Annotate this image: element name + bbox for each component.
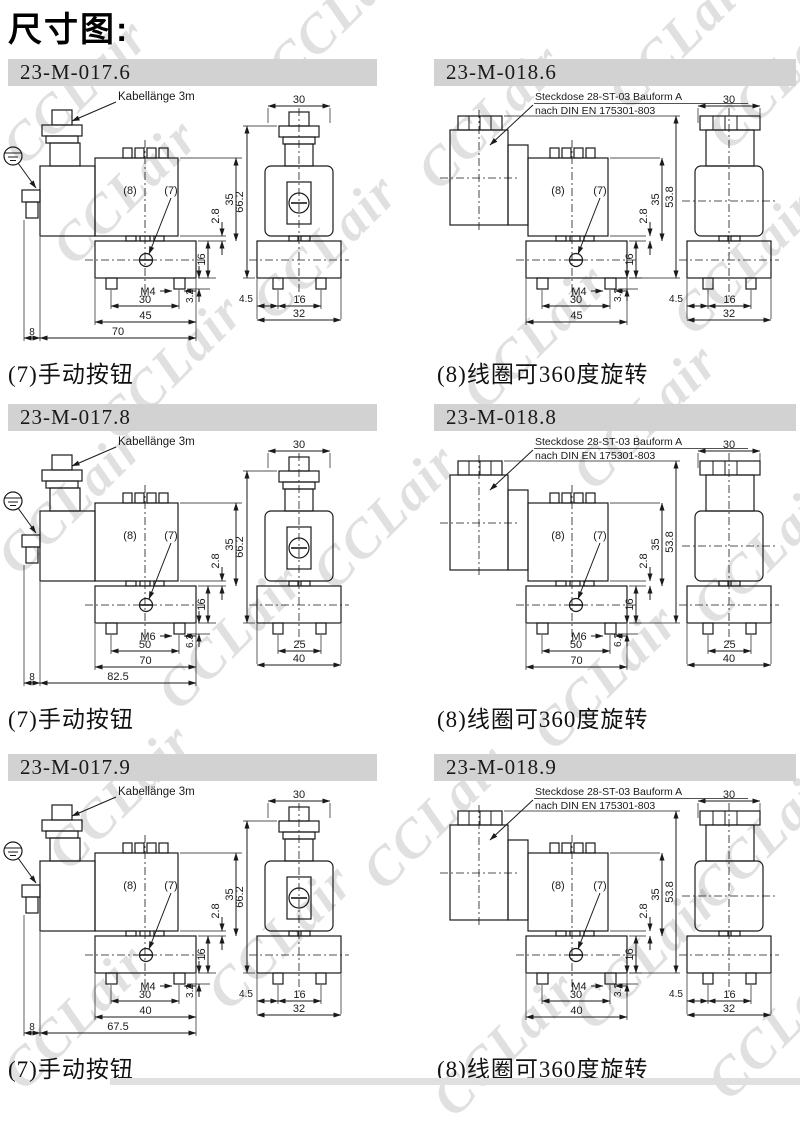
- dim-label: 16: [723, 989, 735, 1001]
- cable-length-label: Kabellänge 3m: [118, 436, 195, 448]
- panel-23-M-018-8: 23-M-018.8 Steckdose 28-ST-03 Bauform An…: [430, 404, 800, 734]
- model-title: 23-M-018.6: [434, 59, 796, 86]
- dim-label: 2.8: [210, 553, 222, 568]
- model-title: 23-M-017.8: [8, 404, 377, 431]
- valve-dimension-drawing: Steckdose 28-ST-03 Bauform Anach DIN EN …: [430, 90, 800, 352]
- dim-label: 53.8: [664, 531, 676, 552]
- dim-label: 8: [29, 672, 35, 683]
- callout-coil: (8): [123, 185, 136, 197]
- technical-drawing: Steckdose 28-ST-03 Bauform Anach DIN EN …: [430, 90, 800, 352]
- dim-label: 53.8: [664, 186, 676, 207]
- dim-label: 16: [624, 948, 636, 960]
- dim-label: 40: [723, 653, 735, 665]
- model-title: 23-M-018.8: [434, 404, 796, 431]
- dim-label: 8: [29, 1022, 35, 1033]
- dim-label: 30: [139, 989, 151, 1001]
- callout-button: (7): [164, 880, 177, 892]
- cable-length-label: Kabellänge 3m: [118, 786, 195, 798]
- dim-label: 2.8: [638, 208, 650, 223]
- dim-label: 16: [196, 253, 208, 265]
- dim-label: 40: [293, 653, 305, 665]
- dim-label: 2.8: [638, 903, 650, 918]
- dim-label: 32: [293, 1003, 305, 1015]
- callout-button: (7): [593, 185, 606, 197]
- dim-label: 25: [723, 639, 735, 651]
- panel-23-M-017-9: 23-M-017.9 Kabellänge 3m(8)(7)162.8353.2…: [0, 754, 420, 1084]
- dim-label: 16: [293, 294, 305, 306]
- dim-label: 82.5: [107, 671, 128, 683]
- dim-label: 66.2: [234, 886, 246, 907]
- dim-label: 16: [196, 948, 208, 960]
- callout-button: (7): [164, 530, 177, 542]
- callout-button: (7): [593, 880, 606, 892]
- dim-label: 30: [723, 94, 735, 106]
- dim-label: 2.8: [210, 208, 222, 223]
- dim-label: 30: [723, 439, 735, 451]
- panel-23-M-018-6: 23-M-018.6 Steckdose 28-ST-03 Bauform An…: [430, 59, 800, 389]
- dim-label: 2.8: [638, 553, 650, 568]
- dim-label: 35: [650, 888, 662, 900]
- connector-label: Steckdose 28-ST-03 Bauform A: [535, 786, 682, 798]
- callout-button: (7): [164, 185, 177, 197]
- dim-label: 53.8: [664, 881, 676, 902]
- valve-dimension-drawing: Kabellänge 3m(8)(7)162.8353.2M4304570830…: [0, 90, 420, 352]
- dim-label: 30: [293, 789, 305, 801]
- connector-label2: nach DIN EN 175301-803: [535, 800, 655, 812]
- dim-label: 4.5: [239, 294, 253, 305]
- dim-label: 66.2: [234, 536, 246, 557]
- dim-label: 45: [570, 310, 582, 322]
- dim-label: 16: [624, 598, 636, 610]
- dim-label: 70: [112, 326, 124, 338]
- dim-label: 67.5: [107, 1021, 128, 1033]
- connector-label2: nach DIN EN 175301-803: [535, 105, 655, 117]
- valve-dimension-drawing: Steckdose 28-ST-03 Bauform Anach DIN EN …: [430, 785, 800, 1047]
- dim-label: 30: [570, 294, 582, 306]
- dim-label: 4.5: [239, 989, 253, 1000]
- panel-caption: (8)线圈可360度旋转: [437, 355, 800, 389]
- panel-caption: (7)手动按钮: [8, 700, 420, 734]
- valve-dimension-drawing: Kabellänge 3m(8)(7)162.8356.3M6507082.58…: [0, 435, 420, 697]
- technical-drawing: Kabellänge 3m(8)(7)162.8353.2M4304067.58…: [0, 785, 420, 1047]
- dim-label: 4.5: [669, 294, 683, 305]
- panel-caption: (8)线圈可360度旋转: [437, 700, 800, 734]
- dim-label: 3.2: [613, 983, 624, 997]
- callout-coil: (8): [123, 880, 136, 892]
- dim-label: 25: [293, 639, 305, 651]
- next-section-bar: [110, 1078, 800, 1085]
- cable-length-label: Kabellänge 3m: [118, 91, 195, 103]
- model-title: 23-M-017.6: [8, 59, 377, 86]
- dim-label: 6.3: [613, 633, 624, 647]
- panel-23-M-017-6: 23-M-017.6 Kabellänge 3m(8)(7)162.8353.2…: [0, 59, 420, 389]
- panel-23-M-018-9: 23-M-018.9 Steckdose 28-ST-03 Bauform An…: [430, 754, 800, 1084]
- connector-label2: nach DIN EN 175301-803: [535, 450, 655, 462]
- dim-label: 32: [723, 308, 735, 320]
- callout-coil: (8): [551, 530, 564, 542]
- dim-label: 40: [139, 1005, 151, 1017]
- callout-button: (7): [593, 530, 606, 542]
- dim-label: 32: [723, 1003, 735, 1015]
- panel-caption: (7)手动按钮: [8, 355, 420, 389]
- model-title: 23-M-017.9: [8, 754, 377, 781]
- technical-drawing: Kabellänge 3m(8)(7)162.8353.2M4304570830…: [0, 90, 420, 352]
- callout-coil: (8): [551, 185, 564, 197]
- dim-label: 16: [196, 598, 208, 610]
- model-title: 23-M-018.9: [434, 754, 796, 781]
- dim-label: 30: [139, 294, 151, 306]
- dim-label: 3.2: [613, 288, 624, 302]
- dim-label: 30: [293, 439, 305, 451]
- callout-coil: (8): [123, 530, 136, 542]
- dim-label: 16: [723, 294, 735, 306]
- dim-label: 35: [650, 193, 662, 205]
- dim-label: 16: [293, 989, 305, 1001]
- dim-label: 30: [570, 989, 582, 1001]
- connector-label: Steckdose 28-ST-03 Bauform A: [535, 436, 682, 448]
- callout-coil: (8): [551, 880, 564, 892]
- panel-23-M-017-8: 23-M-017.8 Kabellänge 3m(8)(7)162.8356.3…: [0, 404, 420, 734]
- dim-label: 30: [293, 94, 305, 106]
- dim-label: 16: [624, 253, 636, 265]
- dim-label: 8: [29, 327, 35, 338]
- dim-label: 50: [570, 639, 582, 651]
- technical-drawing: Steckdose 28-ST-03 Bauform Anach DIN EN …: [430, 785, 800, 1047]
- dim-label: 40: [570, 1005, 582, 1017]
- dim-label: 70: [570, 655, 582, 667]
- dim-label: 4.5: [669, 989, 683, 1000]
- dim-label: 30: [723, 789, 735, 801]
- page-title: 尺寸图:: [8, 2, 129, 51]
- valve-dimension-drawing: Steckdose 28-ST-03 Bauform Anach DIN EN …: [430, 435, 800, 697]
- dim-label: 35: [650, 538, 662, 550]
- technical-drawing: Kabellänge 3m(8)(7)162.8356.3M6507082.58…: [0, 435, 420, 697]
- dim-label: 70: [139, 655, 151, 667]
- valve-dimension-drawing: Kabellänge 3m(8)(7)162.8353.2M4304067.58…: [0, 785, 420, 1047]
- technical-drawing: Steckdose 28-ST-03 Bauform Anach DIN EN …: [430, 435, 800, 697]
- dim-label: 2.8: [210, 903, 222, 918]
- dim-label: 50: [139, 639, 151, 651]
- connector-label: Steckdose 28-ST-03 Bauform A: [535, 91, 682, 103]
- dim-label: 45: [139, 310, 151, 322]
- dim-label: 32: [293, 308, 305, 320]
- dim-label: 66.2: [234, 191, 246, 212]
